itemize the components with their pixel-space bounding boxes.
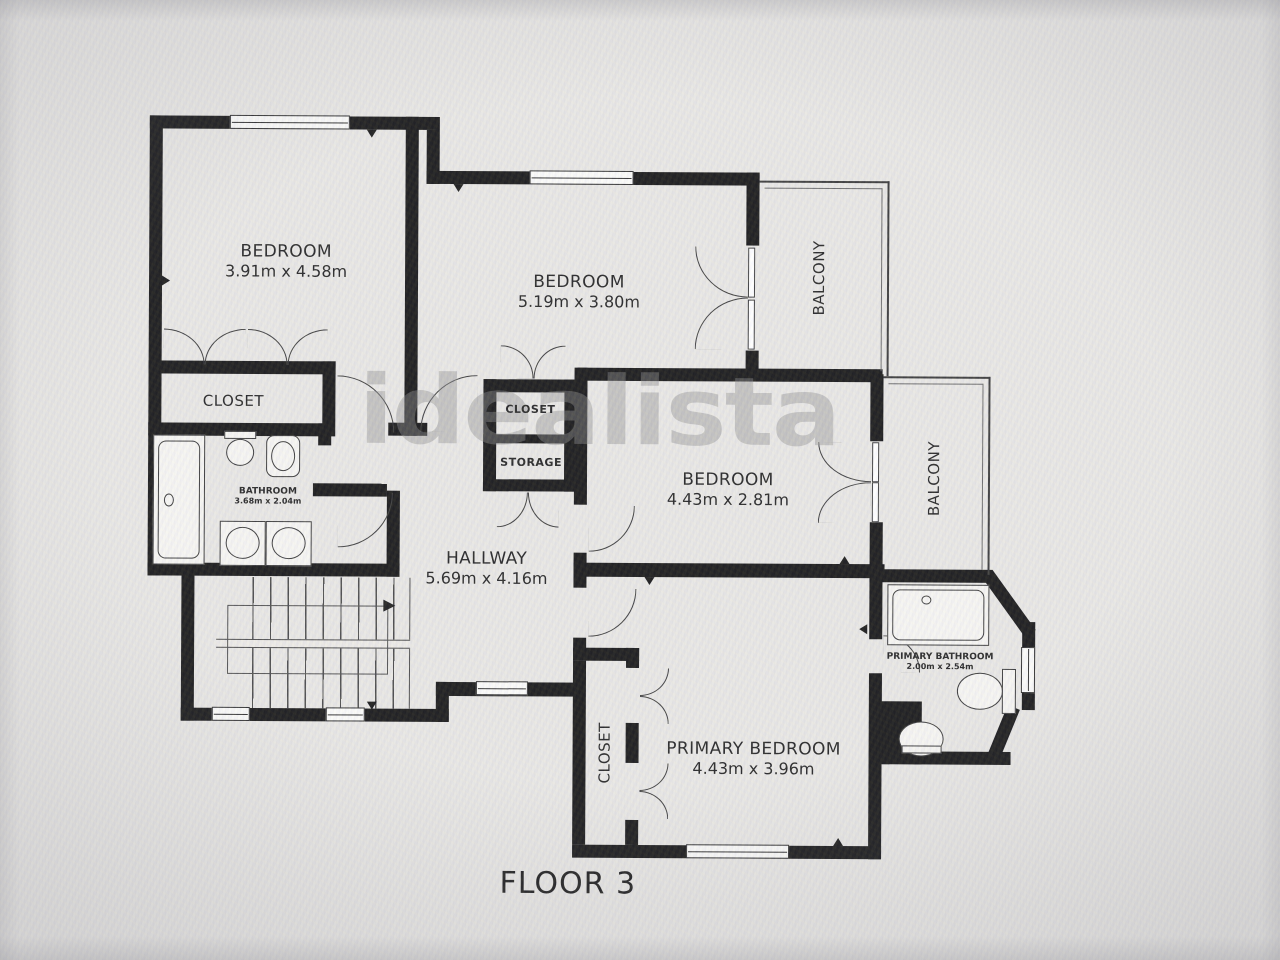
room-label-primary-bathroom: PRIMARY BATHROOM 2.00m x 2.54m bbox=[887, 652, 994, 672]
stair-walk-line bbox=[227, 605, 388, 675]
balcony-door-arc bbox=[695, 246, 748, 297]
wall bbox=[870, 374, 883, 441]
wall bbox=[869, 578, 882, 639]
bifold-door bbox=[639, 791, 668, 819]
window bbox=[530, 170, 634, 185]
wall bbox=[868, 673, 882, 859]
wall-tick bbox=[162, 275, 170, 285]
room-name: HALLWAY bbox=[426, 548, 548, 569]
shower-drain bbox=[921, 595, 931, 604]
stair-direction-arrow bbox=[383, 600, 395, 612]
floor-plan-photo: idealista BEDROOM 3.91m x 4.58m BEDROOM … bbox=[0, 0, 1280, 960]
room-label-balcony-right: BALCONY bbox=[925, 441, 943, 516]
room-dims: 5.19m x 3.80m bbox=[518, 292, 640, 312]
window bbox=[476, 681, 528, 695]
room-label-closet2: CLOSET bbox=[505, 403, 555, 416]
wall-tick bbox=[454, 184, 464, 192]
bifold-door bbox=[205, 329, 246, 365]
bifold-door bbox=[288, 329, 328, 365]
bathtub-drain bbox=[164, 494, 174, 507]
idealista-watermark: idealista bbox=[358, 355, 840, 468]
door-arc-bathroom bbox=[338, 492, 393, 547]
door-arc-primary-bedroom bbox=[588, 589, 636, 637]
room-label-storage: STORAGE bbox=[500, 456, 562, 469]
wall bbox=[870, 522, 883, 569]
wall bbox=[626, 723, 639, 763]
balcony-door-leaf bbox=[872, 442, 879, 482]
floor-plan: idealista BEDROOM 3.91m x 4.58m BEDROOM … bbox=[0, 0, 1280, 960]
room-label-bedroom3: BEDROOM 4.43m x 2.81m bbox=[667, 470, 789, 510]
room-dims: 3.91m x 4.58m bbox=[225, 261, 347, 281]
bifold-door bbox=[164, 329, 205, 365]
balcony-door-arc bbox=[695, 297, 748, 349]
bifold-door bbox=[497, 492, 528, 527]
window bbox=[326, 707, 365, 721]
room-name: BEDROOM bbox=[518, 272, 640, 293]
wall-tick bbox=[644, 577, 654, 585]
room-dims: 4.43m x 3.96m bbox=[666, 759, 841, 779]
window bbox=[1021, 647, 1035, 693]
toilet-tank bbox=[224, 431, 256, 439]
room-name: BEDROOM bbox=[667, 470, 789, 491]
door-arc-bedroom3 bbox=[589, 506, 635, 552]
room-label-hallway: HALLWAY 5.69m x 4.16m bbox=[425, 548, 547, 588]
room-label-closet1: CLOSET bbox=[203, 392, 264, 410]
bifold-door bbox=[639, 763, 668, 791]
room-label-bathroom: BATHROOM 3.68m x 2.04m bbox=[234, 486, 301, 505]
balcony-door-leaf bbox=[872, 482, 879, 522]
window bbox=[230, 115, 350, 130]
sink-basin bbox=[226, 527, 260, 559]
bifold-door bbox=[528, 492, 559, 527]
room-dims: 4.43m x 2.81m bbox=[667, 490, 789, 510]
balcony-door-leaf bbox=[748, 248, 755, 298]
wall-tick bbox=[859, 624, 867, 634]
window bbox=[686, 844, 789, 859]
room-name: BATHROOM bbox=[234, 486, 301, 496]
window bbox=[212, 707, 250, 721]
room-label-bedroom1: BEDROOM 3.91m x 4.58m bbox=[225, 241, 347, 281]
wall bbox=[483, 479, 577, 491]
room-label-balcony-top: BALCONY bbox=[810, 240, 828, 315]
room-dims: 2.00m x 2.54m bbox=[887, 662, 994, 672]
shower-tray bbox=[892, 589, 984, 640]
room-name: PRIMARY BATHROOM bbox=[887, 652, 994, 663]
wall bbox=[573, 563, 884, 579]
wall bbox=[746, 173, 759, 246]
wall-tick bbox=[840, 556, 850, 564]
room-label-closet-primary: CLOSET bbox=[595, 722, 613, 783]
toilet-tank bbox=[1002, 669, 1016, 714]
toilet-bowl bbox=[226, 439, 254, 466]
balcony-door-arc bbox=[818, 482, 871, 523]
bifold-door bbox=[640, 696, 669, 724]
room-label-primary-bedroom: PRIMARY BEDROOM 4.43m x 3.96m bbox=[666, 739, 841, 779]
floor-title: FLOOR 3 bbox=[499, 866, 636, 902]
sink-basin bbox=[272, 527, 306, 559]
room-label-bedroom2: BEDROOM 5.19m x 3.80m bbox=[518, 272, 640, 312]
toilet-bowl bbox=[957, 673, 1003, 710]
wall-tick bbox=[833, 838, 843, 846]
room-name: BEDROOM bbox=[225, 241, 347, 262]
balcony-door-leaf bbox=[748, 300, 755, 350]
room-dims: 5.69m x 4.16m bbox=[425, 568, 547, 588]
room-dims: 3.68m x 2.04m bbox=[234, 496, 301, 505]
bifold-door bbox=[248, 329, 288, 365]
wall-tick bbox=[367, 130, 377, 138]
wall bbox=[626, 648, 639, 668]
bidet-back bbox=[902, 745, 942, 753]
bifold-door bbox=[640, 668, 669, 696]
wall-tick bbox=[367, 702, 377, 710]
bidet-bowl bbox=[271, 441, 295, 471]
wall bbox=[181, 573, 195, 721]
room-name: PRIMARY BEDROOM bbox=[666, 739, 841, 760]
wall bbox=[625, 820, 638, 845]
